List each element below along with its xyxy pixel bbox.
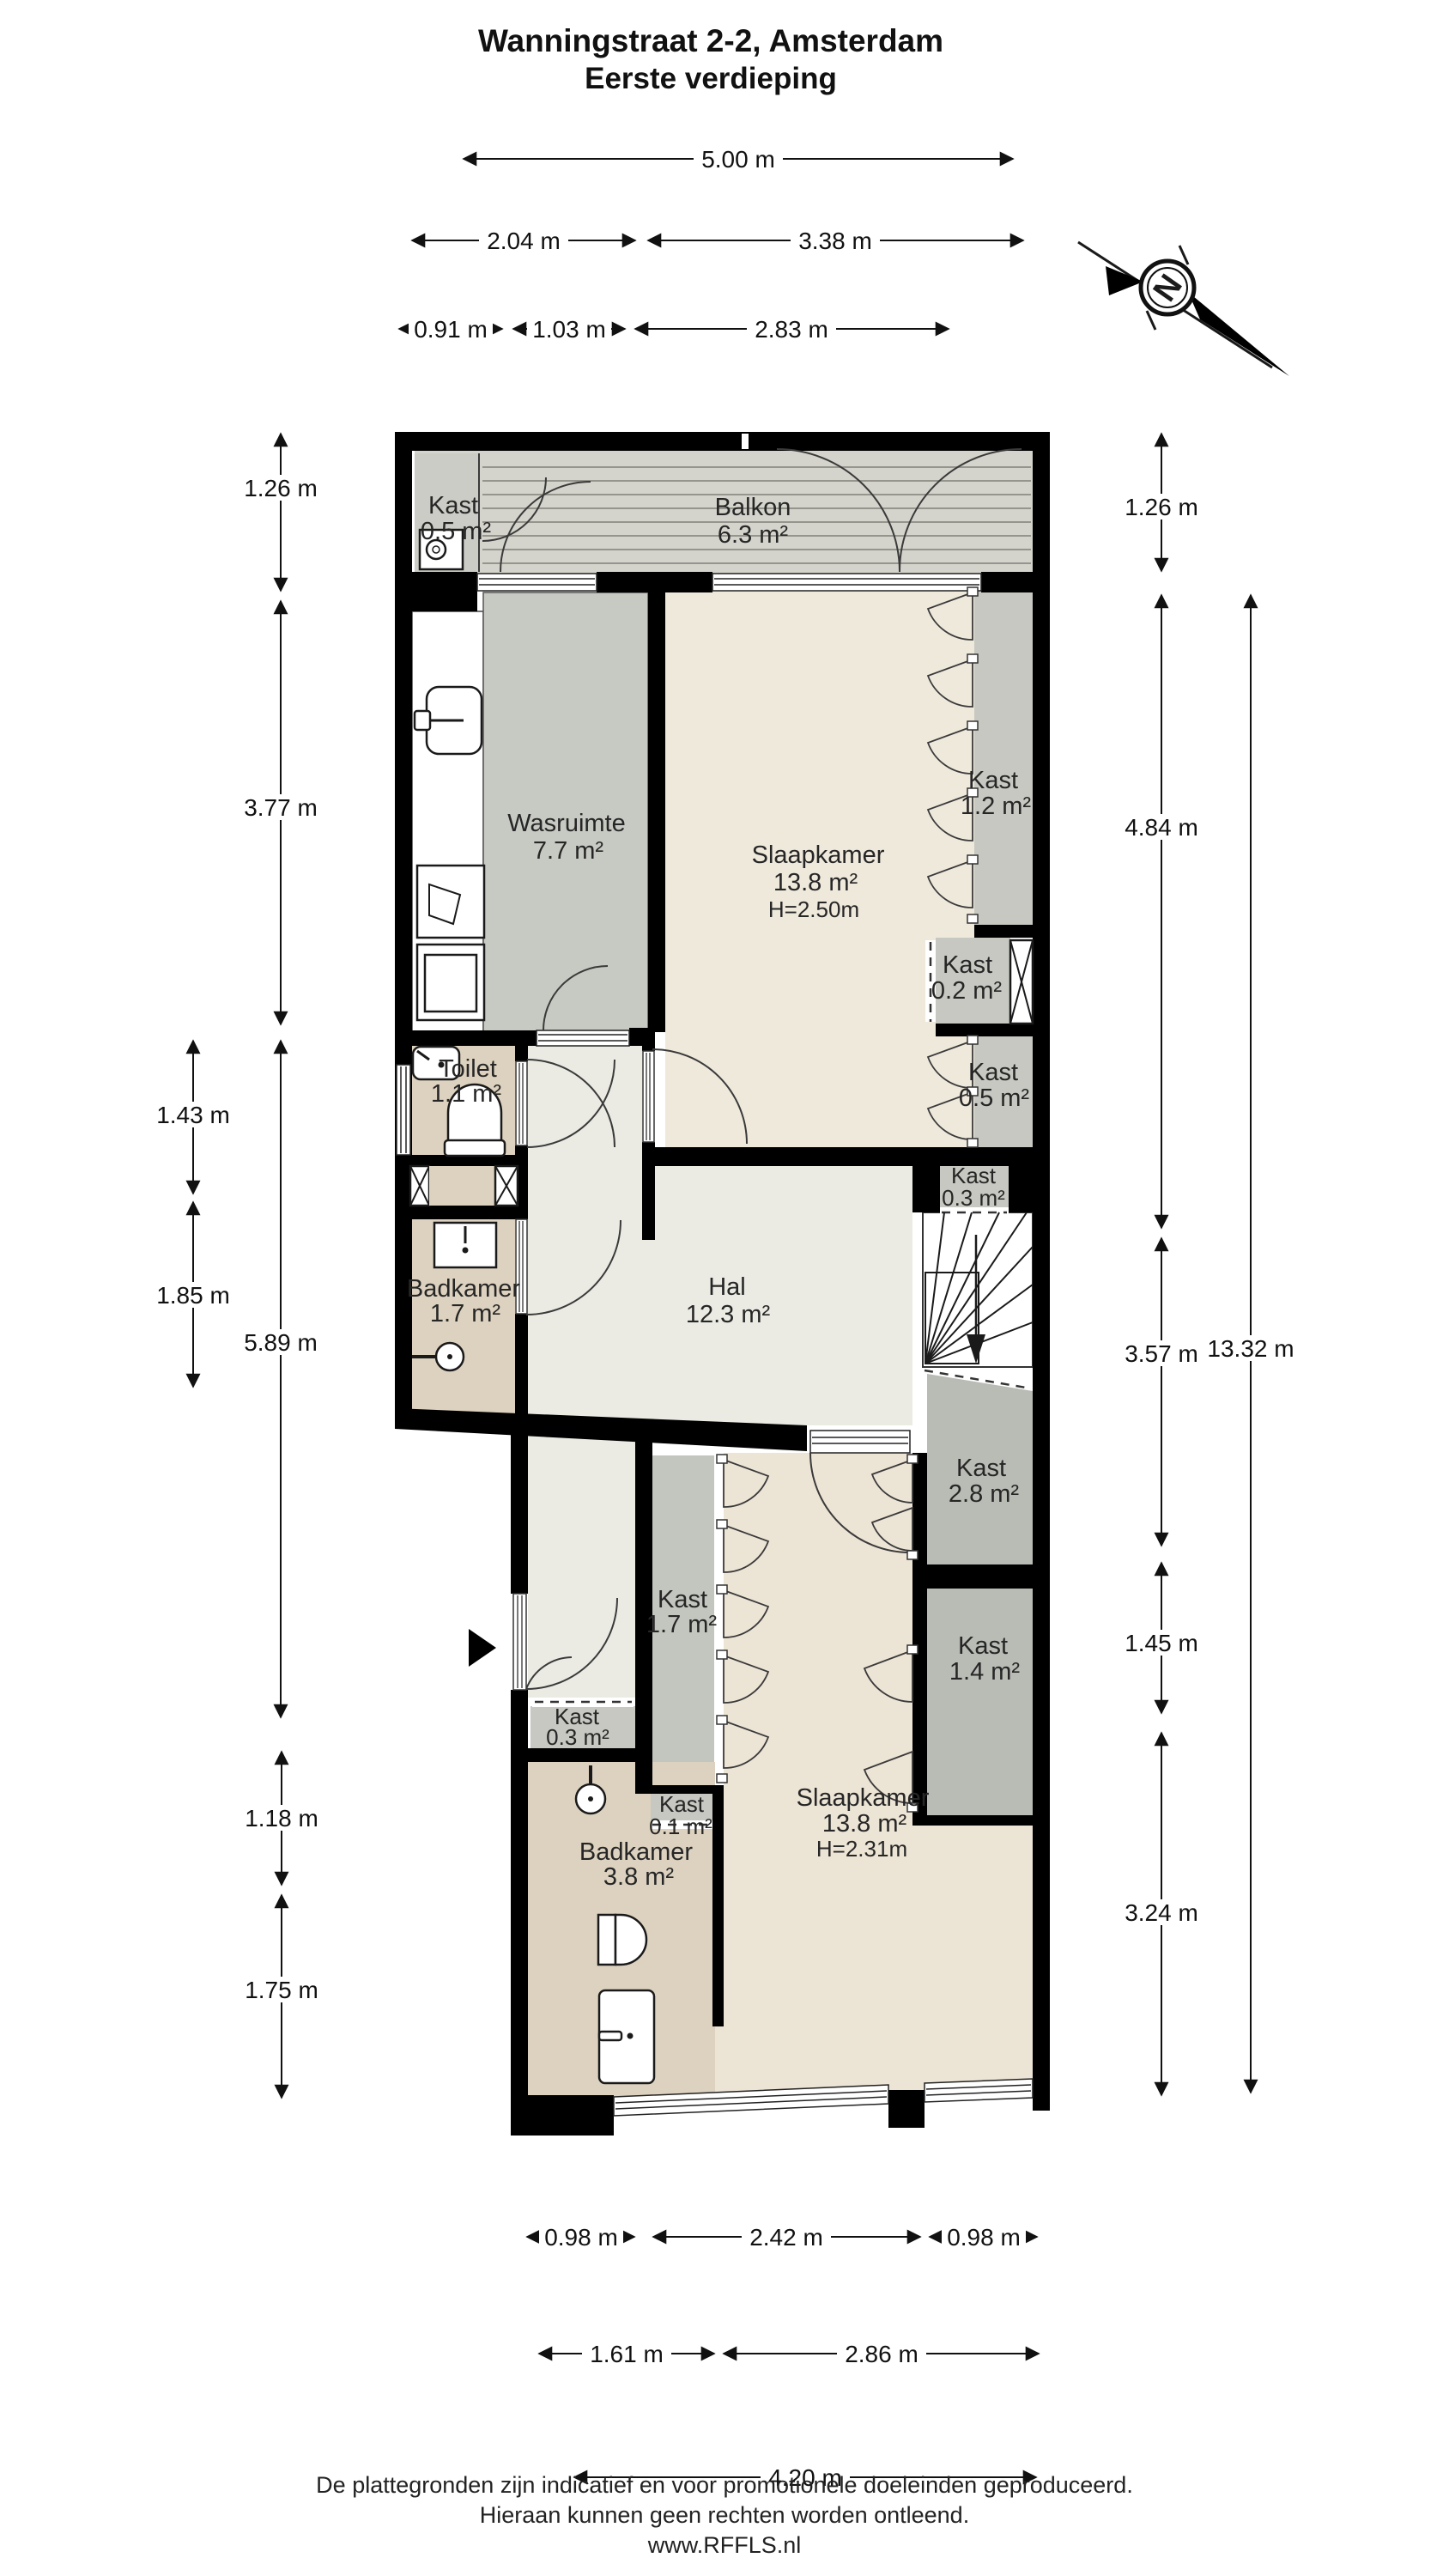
shaft-box-3: [1010, 940, 1033, 1024]
dim-left-1-26: 1.26 m: [236, 434, 325, 591]
label-hal-name: Hal: [708, 1273, 746, 1301]
dim-label: 2.42 m: [749, 2224, 823, 2251]
label-balkon-name: Balkon: [715, 494, 791, 521]
window-toilet-left-wall: [397, 1065, 410, 1155]
dim-left-1-75: 1.75 m: [237, 1895, 326, 2098]
dryer-icon: [417, 945, 484, 1020]
dim-label: 13.32 m: [1207, 1335, 1294, 1362]
toilet-bowl-onder-icon: [598, 1915, 646, 1965]
dim-right-4-84: 4.84 m: [1117, 595, 1206, 1228]
doorway-slaapkamer-onder: [810, 1431, 910, 1453]
jamb-toilet-door: [516, 1061, 527, 1145]
window-balkon-right: [712, 574, 981, 591]
window-bottom-right: [925, 2079, 1033, 2102]
label-kast-2-8-area: 2.8 m²: [949, 1480, 1020, 1508]
dim-label: 1.75 m: [245, 1977, 318, 2003]
dim-right-1-26: 1.26 m: [1117, 434, 1206, 571]
label-badkamer-onder-name: Badkamer: [579, 1838, 694, 1866]
doorway-wasruimte: [537, 1030, 629, 1046]
washbasin-badkamer-onder-icon: [599, 1990, 654, 2083]
dim-label: 0.98 m: [544, 2224, 618, 2251]
label-wasruimte-name: Wasruimte: [507, 810, 626, 837]
dim-left-5-89: 5.89 m: [236, 1041, 325, 1717]
label-kast-0-5-name: Kast: [968, 1059, 1018, 1086]
label-badkamer-onder-area: 3.8 m²: [603, 1863, 675, 1891]
footer: De plattegronden zijn indicatief en voor…: [316, 2472, 1133, 2558]
dim-top-1-03: 1.03 m: [513, 316, 625, 343]
room-floor-hal-strip: [642, 1240, 655, 1425]
footer-line3: www.RFFLS.nl: [647, 2532, 802, 2558]
dim-top-3-38: 3.38 m: [648, 228, 1023, 254]
dim-left-1-18: 1.18 m: [237, 1752, 326, 1885]
floor-plan-svg: Wanningstraat 2-2, Amsterdam Eerste verd…: [0, 0, 1449, 2576]
title-line1: Wanningstraat 2-2, Amsterdam: [478, 23, 943, 58]
label-slaapkamer-onder-area: 13.8 m²: [822, 1810, 907, 1838]
room-floor-slaapkamer-onder-c: [715, 2026, 724, 2098]
shaft-gap-tan: [429, 1166, 495, 1206]
label-kast-0-3-boven-area: 0.3 m²: [942, 1185, 1005, 1211]
dim-label: 2.83 m: [755, 316, 828, 343]
dim-label: 1.26 m: [1125, 494, 1198, 520]
dim-label: 2.04 m: [487, 228, 561, 254]
jamb-entry-door: [513, 1594, 526, 1690]
label-badkamer-boven-area: 1.7 m²: [430, 1300, 501, 1327]
label-kast-1-7-area: 1.7 m²: [646, 1611, 718, 1638]
dim-bottom-1-61: 1.61 m: [539, 2341, 714, 2367]
label-balkon-area: 6.3 m²: [718, 521, 789, 549]
jamb-slaapkamer-boven-door: [643, 1051, 654, 1142]
label-kast-0-2-area: 0.2 m²: [931, 977, 1003, 1005]
label-kast-1-2-area: 1.2 m²: [961, 793, 1032, 820]
dim-label: 1.85 m: [156, 1282, 230, 1309]
dim-top-2-04: 2.04 m: [412, 228, 635, 254]
label-kast-1-2-name: Kast: [968, 767, 1018, 794]
dim-left-1-85: 1.85 m: [149, 1202, 238, 1387]
label-kast-1-4-area: 1.4 m²: [949, 1658, 1021, 1686]
dim-label: 1.26 m: [244, 475, 318, 501]
dim-label: 3.24 m: [1125, 1899, 1198, 1926]
dim-label: 1.03 m: [532, 316, 606, 343]
label-slaapkamer-onder-name: Slaapkamer: [797, 1784, 930, 1812]
dim-left-1-43: 1.43 m: [149, 1041, 238, 1194]
dim-label: 1.43 m: [156, 1102, 230, 1128]
dim-bottom-2-86: 2.86 m: [724, 2341, 1039, 2367]
label-toilet-area: 1.1 m²: [431, 1080, 502, 1108]
label-wasruimte-area: 7.7 m²: [533, 837, 604, 865]
label-slaapkamer-onder-height: H=2.31m: [816, 1836, 907, 1862]
dim-label: 0.98 m: [947, 2224, 1021, 2251]
dim-label: 5.00 m: [701, 146, 775, 173]
label-hal-area: 12.3 m²: [686, 1301, 771, 1328]
dim-right-3-24: 3.24 m: [1117, 1733, 1206, 2095]
dim-top-2-83: 2.83 m: [635, 316, 949, 343]
entrance-arrow: [469, 1629, 496, 1667]
footer-line2: Hieraan kunnen geen rechten worden ontle…: [480, 2502, 969, 2528]
shaft-box-2: [495, 1166, 518, 1206]
compass: N: [1078, 242, 1289, 376]
title-line2: Eerste verdieping: [585, 62, 837, 95]
dim-label: 2.86 m: [845, 2341, 919, 2367]
washer-icon: [417, 866, 484, 938]
dim-label: 1.45 m: [1125, 1630, 1198, 1656]
footer-line1: De plattegronden zijn indicatief en voor…: [316, 2472, 1133, 2498]
dim-label: 4.84 m: [1125, 814, 1198, 841]
dim-label: 3.57 m: [1125, 1340, 1198, 1367]
dim-left-3-77: 3.77 m: [236, 601, 325, 1024]
label-kast-1-7-name: Kast: [658, 1586, 707, 1613]
compass-south-dart: [1188, 292, 1289, 376]
label-slaapkamer-boven-name: Slaapkamer: [752, 841, 885, 869]
dim-right-3-57: 3.57 m: [1117, 1238, 1206, 1546]
label-kast-0-2-name: Kast: [943, 951, 992, 979]
dim-bottom-0-98-right: 0.98 m: [930, 2224, 1037, 2251]
dim-bottom-2-42: 2.42 m: [653, 2224, 920, 2251]
dim-top-5-00: 5.00 m: [464, 146, 1013, 173]
label-slaapkamer-boven-height: H=2.50m: [768, 896, 859, 922]
dim-label: 3.38 m: [798, 228, 872, 254]
dim-label: 0.91 m: [414, 316, 488, 343]
label-kast-0-5-area: 0.5 m²: [959, 1084, 1030, 1112]
dim-bottom-0-98-left: 0.98 m: [527, 2224, 634, 2251]
room-floor-slaapkamer-onder-a: [724, 1453, 912, 1826]
dim-label: 1.61 m: [590, 2341, 664, 2367]
dim-right-1-45: 1.45 m: [1117, 1563, 1206, 1713]
label-kast-balkon-name: Kast: [428, 492, 478, 519]
washbasin-badkamer-boven-icon: [434, 1223, 496, 1267]
room-floor-hal-nook: [527, 1046, 642, 1425]
room-floor-kast-1-4: [927, 1589, 1033, 1815]
label-badkamer-boven-name: Badkamer: [407, 1275, 521, 1303]
page-title: Wanningstraat 2-2, Amsterdam Eerste verd…: [478, 23, 943, 95]
label-kast-0-1-area: 0.1 m²: [649, 1814, 712, 1839]
compass-tick-top: [1179, 246, 1188, 264]
label-kast-balkon-area: 0.5 m²: [421, 518, 492, 545]
room-floor-hal-arm: [528, 1425, 635, 1698]
label-kast-0-3-onder-area: 0.3 m²: [546, 1724, 609, 1750]
room-floor-kast-1-2: [974, 588, 1033, 925]
label-toilet-name: Toilet: [439, 1055, 497, 1083]
dim-label: 3.77 m: [244, 794, 318, 821]
dim-label: 1.18 m: [245, 1805, 318, 1832]
compass-tick-bottom: [1147, 311, 1155, 330]
room-floor-hal-main: [655, 1166, 912, 1425]
dim-label: 5.89 m: [244, 1329, 318, 1356]
dim-top-0-91: 0.91 m: [399, 316, 502, 343]
window-balkon-left: [477, 574, 597, 591]
label-slaapkamer-boven-area: 13.8 m²: [773, 869, 858, 896]
label-kast-2-8-name: Kast: [956, 1455, 1006, 1482]
room-floor-slaapkamer-onder-b: [724, 1826, 1033, 2098]
dim-right-13-32: 13.32 m: [1197, 595, 1305, 2093]
label-kast-1-4-name: Kast: [958, 1632, 1008, 1660]
shaft-box-1: [410, 1166, 429, 1206]
